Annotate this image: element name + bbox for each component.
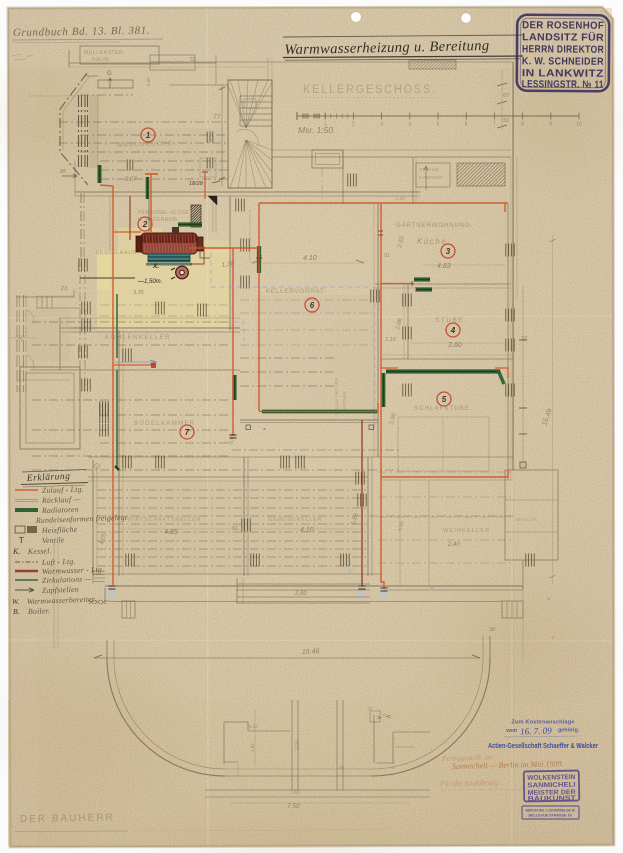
svg-text:HERRN DIREKTOR: HERRN DIREKTOR: [522, 44, 604, 56]
svg-text:BELLEVUE STRASSE 79.: BELLEVUE STRASSE 79.: [529, 814, 573, 818]
svg-text:Zirkulations —: Zirkulations —: [42, 574, 92, 585]
svg-text:DER ROSENHOF: DER ROSENHOF: [522, 20, 604, 32]
svg-text:70: 70: [382, 713, 388, 718]
svg-text:6: 6: [465, 122, 468, 128]
svg-text:Heizfläche: Heizfläche: [41, 525, 78, 535]
svg-text:51: 51: [503, 118, 509, 124]
svg-text:—1,50m.: —1,50m.: [137, 279, 162, 285]
svg-text:WIRTSCHAFTSKELLER: WIRTSCHAFTSKELLER: [127, 517, 201, 523]
svg-text:GÄRTNERWOHNUNG.: GÄRTNERWOHNUNG.: [396, 222, 473, 229]
svg-text:Boiler.: Boiler.: [28, 606, 50, 616]
svg-text:3: 3: [380, 122, 383, 128]
svg-text:Kessel.: Kessel.: [27, 546, 52, 556]
svg-text:0,32: 0,32: [249, 724, 258, 729]
svg-text:Grundbuch Bd. 13. Bl. 381.: Grundbuch Bd. 13. Bl. 381.: [13, 25, 150, 39]
svg-text:23: 23: [60, 286, 68, 292]
svg-text:Für die Ausführung: Für die Ausführung: [439, 778, 499, 788]
svg-text:MÜLLKASTEN: MÜLLKASTEN: [84, 49, 123, 56]
svg-text:WASCHK.: WASCHK.: [516, 517, 539, 522]
svg-text:3.07: 3.07: [125, 177, 137, 183]
svg-text:×: ×: [263, 427, 266, 433]
svg-text:PERSONAL-KLOSETT: PERSONAL-KLOSETT: [138, 210, 196, 216]
svg-text:7: 7: [493, 122, 496, 128]
svg-text:7.66: 7.66: [290, 790, 300, 796]
svg-text:SPEISE: SPEISE: [419, 167, 439, 173]
svg-text:KESSELHAUS: KESSELHAUS: [96, 250, 137, 256]
svg-text:3.35: 3.35: [133, 290, 145, 296]
svg-text:16. 7. 09: 16. 7. 09: [520, 725, 552, 736]
svg-text:GEMÜSEKELLER: GEMÜSEKELLER: [268, 516, 323, 523]
svg-text:KAMMER: KAMMER: [419, 175, 443, 181]
svg-text:K. W. SCHNEIDER: K. W. SCHNEIDER: [522, 56, 604, 68]
svg-text:KELLERGESCHOSS.: KELLERGESCHOSS.: [303, 84, 437, 96]
svg-text:T: T: [19, 536, 24, 545]
svg-text:4.83: 4.83: [437, 263, 451, 270]
svg-text:2.40: 2.40: [447, 542, 460, 548]
svg-text:Zapfstellen: Zapfstellen: [42, 585, 79, 595]
svg-text:Zulauf - Ltg.: Zulauf - Ltg.: [42, 485, 84, 495]
svg-text:1.20: 1.20: [396, 196, 405, 201]
svg-text:Ventile: Ventile: [42, 535, 65, 545]
svg-text:X.: X.: [152, 263, 159, 270]
svg-text:10: 10: [576, 122, 582, 128]
svg-text:DER BAUHERR: DER BAUHERR: [20, 812, 115, 825]
svg-text:1.85: 1.85: [250, 743, 255, 752]
svg-text:18/28: 18/28: [189, 181, 204, 187]
svg-text:51: 51: [384, 253, 390, 259]
svg-text:STELLE FüR DEN: STELLE FüR DEN: [334, 378, 339, 415]
svg-text:85: 85: [60, 169, 67, 175]
svg-text:4.85: 4.85: [164, 529, 178, 536]
svg-text:4: 4: [450, 326, 456, 335]
svg-text:8: 8: [521, 122, 524, 128]
svg-text:7: 7: [185, 428, 190, 437]
svg-text:WERKPLATZ.: WERKPLATZ.: [153, 60, 185, 65]
svg-text:BERLIN-GR. LICHTERFELDE W.: BERLIN-GR. LICHTERFELDE W.: [526, 809, 576, 813]
svg-text:6: 6: [310, 301, 315, 310]
svg-text:K.: K.: [12, 547, 20, 556]
svg-text:5: 5: [442, 395, 447, 404]
svg-text:38: 38: [489, 627, 496, 633]
svg-text:gehörig.: gehörig.: [558, 728, 580, 734]
svg-text:53: 53: [190, 57, 196, 63]
svg-text:×: ×: [547, 597, 551, 603]
svg-text:2.00: 2.00: [295, 740, 301, 750]
svg-text:Actien-Gesellschaft Schaeffer: Actien-Gesellschaft Schaeffer & Walcker: [488, 743, 598, 750]
svg-text:16.46: 16.46: [302, 648, 320, 656]
svg-text:+: +: [551, 636, 555, 642]
svg-text:Rücklauf —: Rücklauf —: [41, 495, 81, 505]
svg-text:38: 38: [339, 765, 345, 770]
svg-text:BÜGELKAMMER: BÜGELKAMMER: [134, 420, 195, 427]
svg-text:LESSINGSTR. № 11: LESSINGSTR. № 11: [522, 79, 604, 91]
svg-text:KELLERVORRAT.: KELLERVORRAT.: [266, 288, 326, 295]
svg-text:RAUM.: RAUM.: [92, 57, 111, 63]
svg-text:GÄRTNER: GÄRTNER: [341, 390, 347, 413]
svg-text:2: 2: [352, 122, 355, 128]
svg-text:32: 32: [521, 336, 527, 342]
svg-text:1: 1: [146, 131, 151, 140]
svg-text:9: 9: [549, 122, 552, 128]
svg-text:W.: W.: [12, 597, 20, 606]
svg-text:WEINKELLER: WEINKELLER: [443, 528, 490, 534]
svg-text:4: 4: [408, 122, 411, 128]
svg-text:1.10: 1.10: [385, 337, 397, 343]
svg-text:0.89: 0.89: [146, 77, 151, 86]
svg-text:B.: B.: [13, 607, 20, 616]
svg-text:IN LANKWITZ: IN LANKWITZ: [522, 68, 604, 80]
svg-text:2: 2: [142, 220, 148, 229]
svg-text:14: 14: [391, 765, 396, 770]
svg-text:Radiatoren: Radiatoren: [41, 505, 79, 515]
svg-text:KOHLENKELLER: KOHLENKELLER: [105, 334, 171, 341]
svg-text:77: 77: [213, 114, 221, 121]
svg-text:LANDSITZ FÜR: LANDSITZ FÜR: [522, 30, 604, 44]
svg-text:7.50: 7.50: [287, 803, 300, 810]
svg-text:4.10: 4.10: [303, 255, 317, 262]
svg-text:Zum Kostenanschlage: Zum Kostenanschlage: [511, 720, 574, 726]
svg-text:5: 5: [437, 122, 440, 128]
svg-text:67: 67: [503, 93, 510, 99]
svg-text:G: G: [107, 71, 112, 77]
svg-text:4.10: 4.10: [300, 527, 314, 534]
svg-text:Msr. 1:50.: Msr. 1:50.: [298, 125, 335, 135]
svg-text:BAUKUNST: BAUKUNST: [528, 795, 577, 803]
svg-text:vom: vom: [506, 728, 517, 734]
svg-text:3: 3: [446, 247, 451, 256]
svg-text:13: 13: [367, 706, 373, 711]
svg-text:2.80: 2.80: [294, 591, 307, 597]
